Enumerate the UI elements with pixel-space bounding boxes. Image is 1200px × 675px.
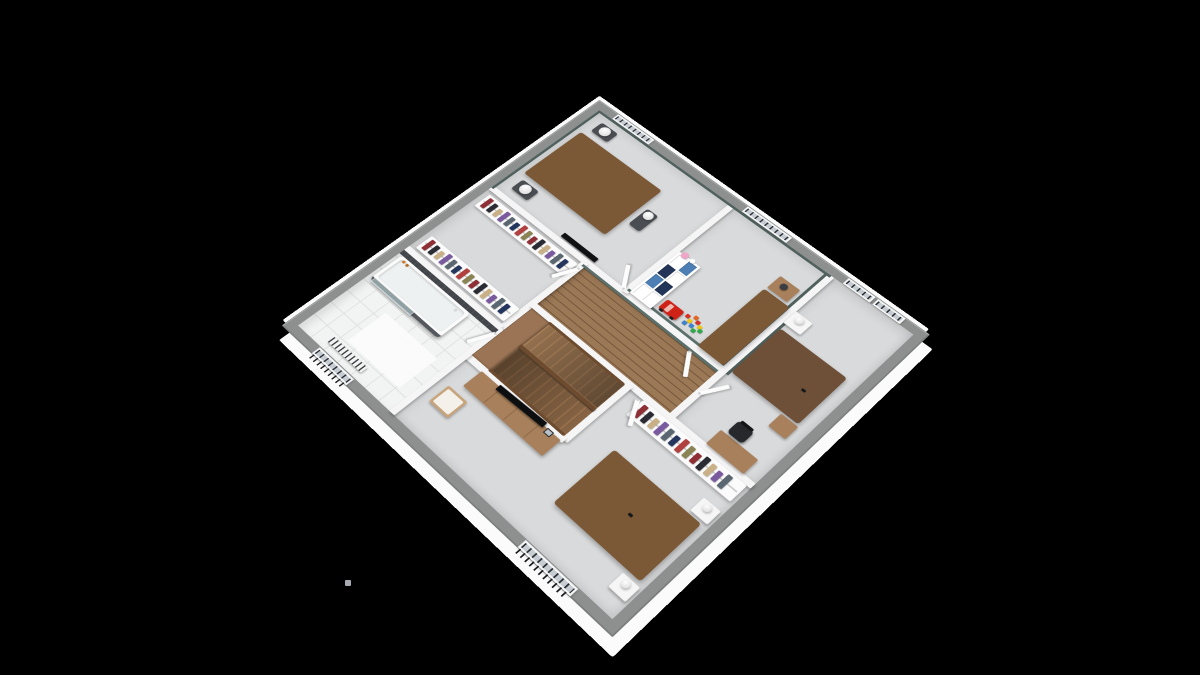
toy-car-windshield: [664, 304, 675, 313]
tv-dresser-bedroom3-drawer-line: [503, 406, 520, 420]
photo-frame-photo: [544, 429, 552, 436]
tv-dresser-bedroom3-drawer-line: [523, 424, 540, 438]
door-kidroom-hinge: [688, 350, 691, 353]
plan-3d: [282, 100, 930, 637]
door-bedroom3-hinge: [636, 398, 639, 401]
door-bedroom2-hinge: [698, 392, 701, 395]
floorplan-stage: [0, 0, 1200, 675]
render-speck: [345, 580, 351, 586]
